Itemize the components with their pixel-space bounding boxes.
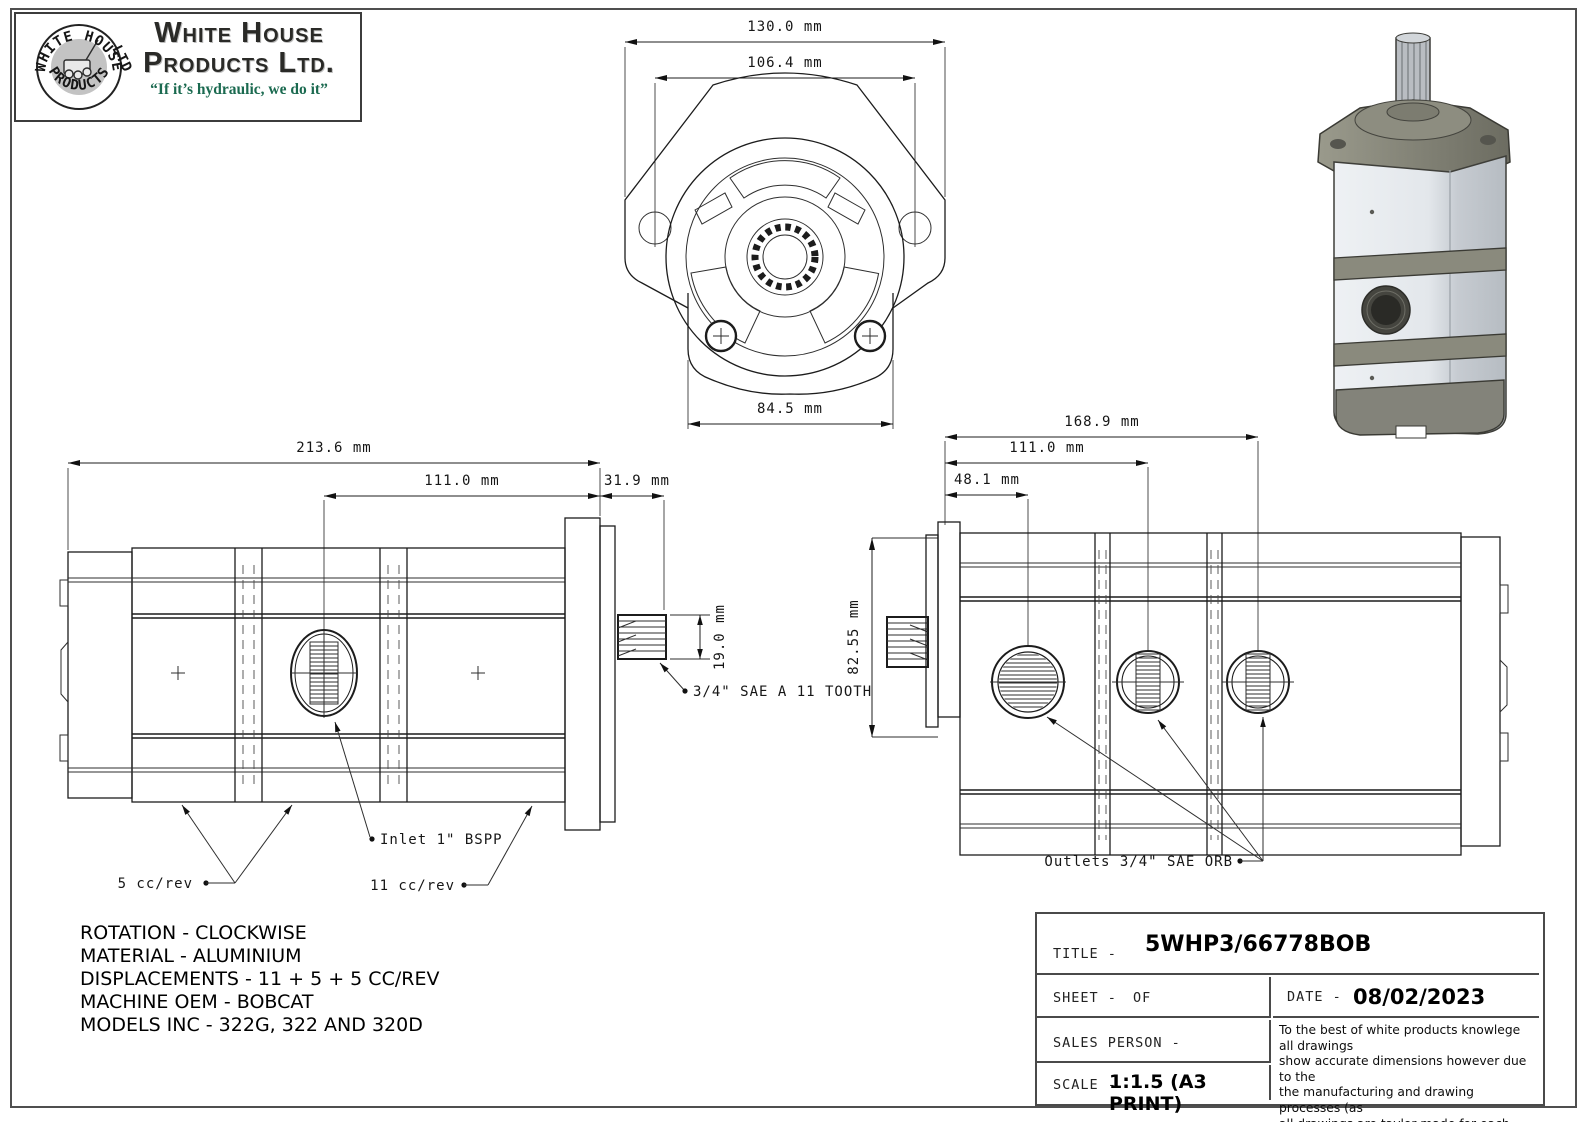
dim-19: 19.0 mm: [712, 604, 728, 670]
scale-value: 1:1.5 (A3 PRINT): [1109, 1071, 1269, 1115]
date-value: 08/02/2023: [1353, 985, 1485, 1009]
sheet-cell: SHEET - OF: [1037, 977, 1271, 1018]
dim-106: 106.4 mm: [747, 55, 822, 71]
drawing-sheet: WHITE HOUSE PRODUCTS LTD White House Pro…: [0, 0, 1587, 1122]
sheet-value: OF: [1133, 990, 1151, 1006]
note-machine-oem: MACHINE OEM - BOBCAT: [80, 991, 439, 1014]
front-view-drawing: 130.0 mm 106.4 mm: [600, 15, 960, 440]
title-block: TITLE - 5WHP3/66778BOB SHEET - OF DATE -…: [1035, 912, 1545, 1106]
inlet-port: [290, 630, 358, 716]
title-row: TITLE - 5WHP3/66778BOB: [1037, 914, 1539, 975]
scale-label: SCALE -: [1053, 1077, 1117, 1093]
right-side-view-drawing: 168.9 mm 111.0 mm 48.1 mm 82.55 mm: [850, 415, 1550, 885]
dim-130: 130.0 mm: [747, 19, 822, 35]
disclaimer-line: To the best of white products knowlege a…: [1279, 1023, 1533, 1054]
disclaimer-line: all drawings are taylor made for each cu…: [1279, 1117, 1533, 1122]
note-material: MATERIAL - ALUMINIUM: [80, 945, 439, 968]
notes: ROTATION - CLOCKWISE MATERIAL - ALUMINIU…: [80, 922, 439, 1037]
disclaimer-line: the manufacturing and drawing processes …: [1279, 1085, 1533, 1116]
logo: WHITE HOUSE PRODUCTS LTD White House Pro…: [14, 12, 362, 122]
drive-shaft-right: [887, 617, 928, 667]
disclaimer: To the best of white products knowlege a…: [1273, 1020, 1539, 1100]
dim-111-right: 111.0 mm: [1009, 440, 1084, 456]
logo-tagline: “If it’s hydraulic, we do it”: [120, 81, 358, 99]
logo-line1: White House: [120, 18, 358, 48]
label-inlet: Inlet 1" BSPP: [380, 832, 503, 848]
title-value: 5WHP3/66778BOB: [1145, 932, 1371, 957]
dim-481: 48.1 mm: [954, 472, 1020, 488]
render-3d: [1300, 22, 1525, 442]
sales-cell: SALES PERSON -: [1037, 1020, 1271, 1063]
dim-111-left: 111.0 mm: [424, 473, 499, 489]
scale-cell: SCALE - 1:1.5 (A3 PRINT): [1037, 1065, 1271, 1100]
sheet-label: SHEET -: [1053, 990, 1117, 1006]
label-outlets: Outlets 3/4" SAE ORB: [1044, 854, 1233, 870]
bolt-right: [855, 321, 885, 351]
dim-84: 84.5 mm: [757, 401, 823, 417]
dim-1689: 168.9 mm: [1064, 414, 1139, 430]
outlet-port-1: [990, 646, 1066, 718]
outlet-port-3: [1222, 651, 1294, 713]
disclaimer-line: show accurate dimensions however due to …: [1279, 1054, 1533, 1085]
date-label: DATE -: [1287, 989, 1342, 1005]
dim-8255: 82.55 mm: [846, 599, 862, 674]
port-3d: [1362, 286, 1410, 334]
spline-bore: [755, 227, 815, 287]
sales-label: SALES PERSON -: [1053, 1035, 1181, 1051]
label-shaft-spline: 3/4" SAE A 11 TOOTH: [693, 684, 872, 700]
date-cell: DATE - 08/02/2023: [1273, 977, 1539, 1018]
logo-line2: Products Ltd.: [120, 48, 358, 78]
bolt-left: [706, 321, 736, 351]
left-side-view-drawing: 213.6 mm 111.0 mm 31.9 mm: [60, 430, 890, 910]
dim-2136: 213.6 mm: [296, 440, 371, 456]
logo-text: White House Products Ltd. “If it’s hydra…: [120, 18, 358, 99]
note-rotation: ROTATION - CLOCKWISE: [80, 922, 439, 945]
title-label: TITLE -: [1053, 946, 1117, 962]
outlet-port-2: [1112, 651, 1184, 713]
drive-shaft: [618, 615, 666, 659]
note-displacements: DISPLACEMENTS - 11 + 5 + 5 CC/REV: [80, 968, 439, 991]
label-5cc: 5 cc/rev: [118, 876, 193, 892]
note-models: MODELS INC - 322G, 322 AND 320D: [80, 1014, 439, 1037]
label-11cc: 11 cc/rev: [370, 878, 455, 894]
dim-319: 31.9 mm: [604, 473, 670, 489]
logo-emblem: WHITE HOUSE PRODUCTS LTD: [24, 14, 126, 116]
